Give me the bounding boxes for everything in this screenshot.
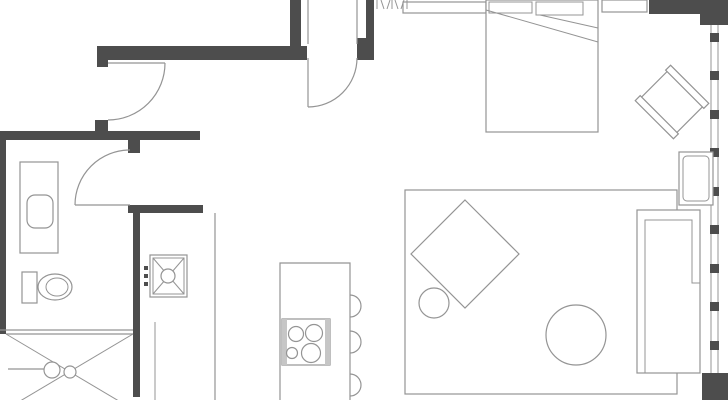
mullion-tick: [710, 225, 719, 234]
rug: [405, 190, 677, 394]
entry-door: [308, 0, 357, 107]
wall-stub-bath-door: [128, 140, 140, 153]
wall-entry-cap: [357, 38, 374, 60]
wall-top-horizontal: [97, 46, 307, 60]
bar-stool: [350, 374, 361, 396]
bathroom-door-arc: [75, 150, 130, 205]
floor-plan: [0, 0, 728, 400]
entry-door-arc: [308, 58, 357, 107]
wall-top-right-step: [700, 14, 728, 25]
wall-top-right: [649, 0, 728, 14]
sleeping-area: [377, 0, 647, 132]
shower-tray: [0, 330, 134, 400]
toilet-bowl-inner: [46, 278, 68, 296]
bar-stool: [350, 295, 361, 317]
wall-stub-hall-door: [97, 60, 108, 67]
dresser: [403, 2, 486, 13]
wall-hall-lower: [0, 131, 200, 140]
cooktop-rail-right: [325, 319, 330, 365]
sink-tap-dot: [144, 266, 148, 270]
mullion-tick: [710, 302, 719, 311]
wall-kitchen-vertical: [133, 213, 140, 397]
bed: [486, 0, 598, 132]
walls: [0, 0, 728, 400]
kitchen: [144, 213, 361, 400]
mullion-tick: [710, 341, 719, 350]
armchair-body: [638, 68, 706, 136]
side-table-outer: [679, 152, 713, 205]
kitchen-sink: [144, 255, 187, 297]
shower-head: [44, 362, 60, 378]
side-table: [679, 152, 713, 205]
nightstand: [602, 0, 647, 12]
cooktop-rail-left: [282, 319, 287, 365]
bar-stool: [350, 331, 361, 353]
sink-drain: [161, 269, 175, 283]
armchair: [635, 65, 709, 139]
hanger-stroke: [395, 0, 398, 9]
hanger-stroke: [387, 0, 390, 9]
wall-bottom-right: [702, 373, 728, 400]
sink-tap-dot: [144, 274, 148, 278]
sofa: [637, 210, 700, 373]
mullion-tick: [710, 110, 719, 119]
bathroom: [0, 162, 134, 400]
wall-stub-above-hall: [95, 120, 108, 131]
wall-top-vertical: [290, 0, 301, 46]
sink-tap-dot: [144, 282, 148, 286]
mullion-tick: [710, 33, 719, 42]
wall-kitchen-horizontal: [128, 205, 203, 213]
hanger-stroke: [381, 0, 384, 9]
shower-drain: [64, 366, 76, 378]
sofa-outline: [637, 210, 700, 373]
vanity-counter: [20, 162, 58, 253]
ottoman: [419, 288, 449, 318]
wall-entry-vertical: [366, 0, 374, 40]
toilet-tank: [22, 272, 37, 303]
hall-door: [108, 63, 165, 120]
bathroom-door: [75, 150, 130, 205]
cooktop: [282, 319, 330, 365]
mullion-tick: [710, 264, 719, 273]
bar-stools: [350, 295, 361, 396]
hall-door-arc: [108, 63, 165, 120]
bed-outline: [486, 0, 598, 132]
square-table-rotated: [411, 200, 519, 308]
floor-plan-page: [0, 0, 728, 400]
round-coffee-table: [546, 305, 606, 365]
mullion-tick: [710, 71, 719, 80]
wall-left-vertical: [0, 131, 6, 334]
wash-basin: [27, 195, 53, 228]
